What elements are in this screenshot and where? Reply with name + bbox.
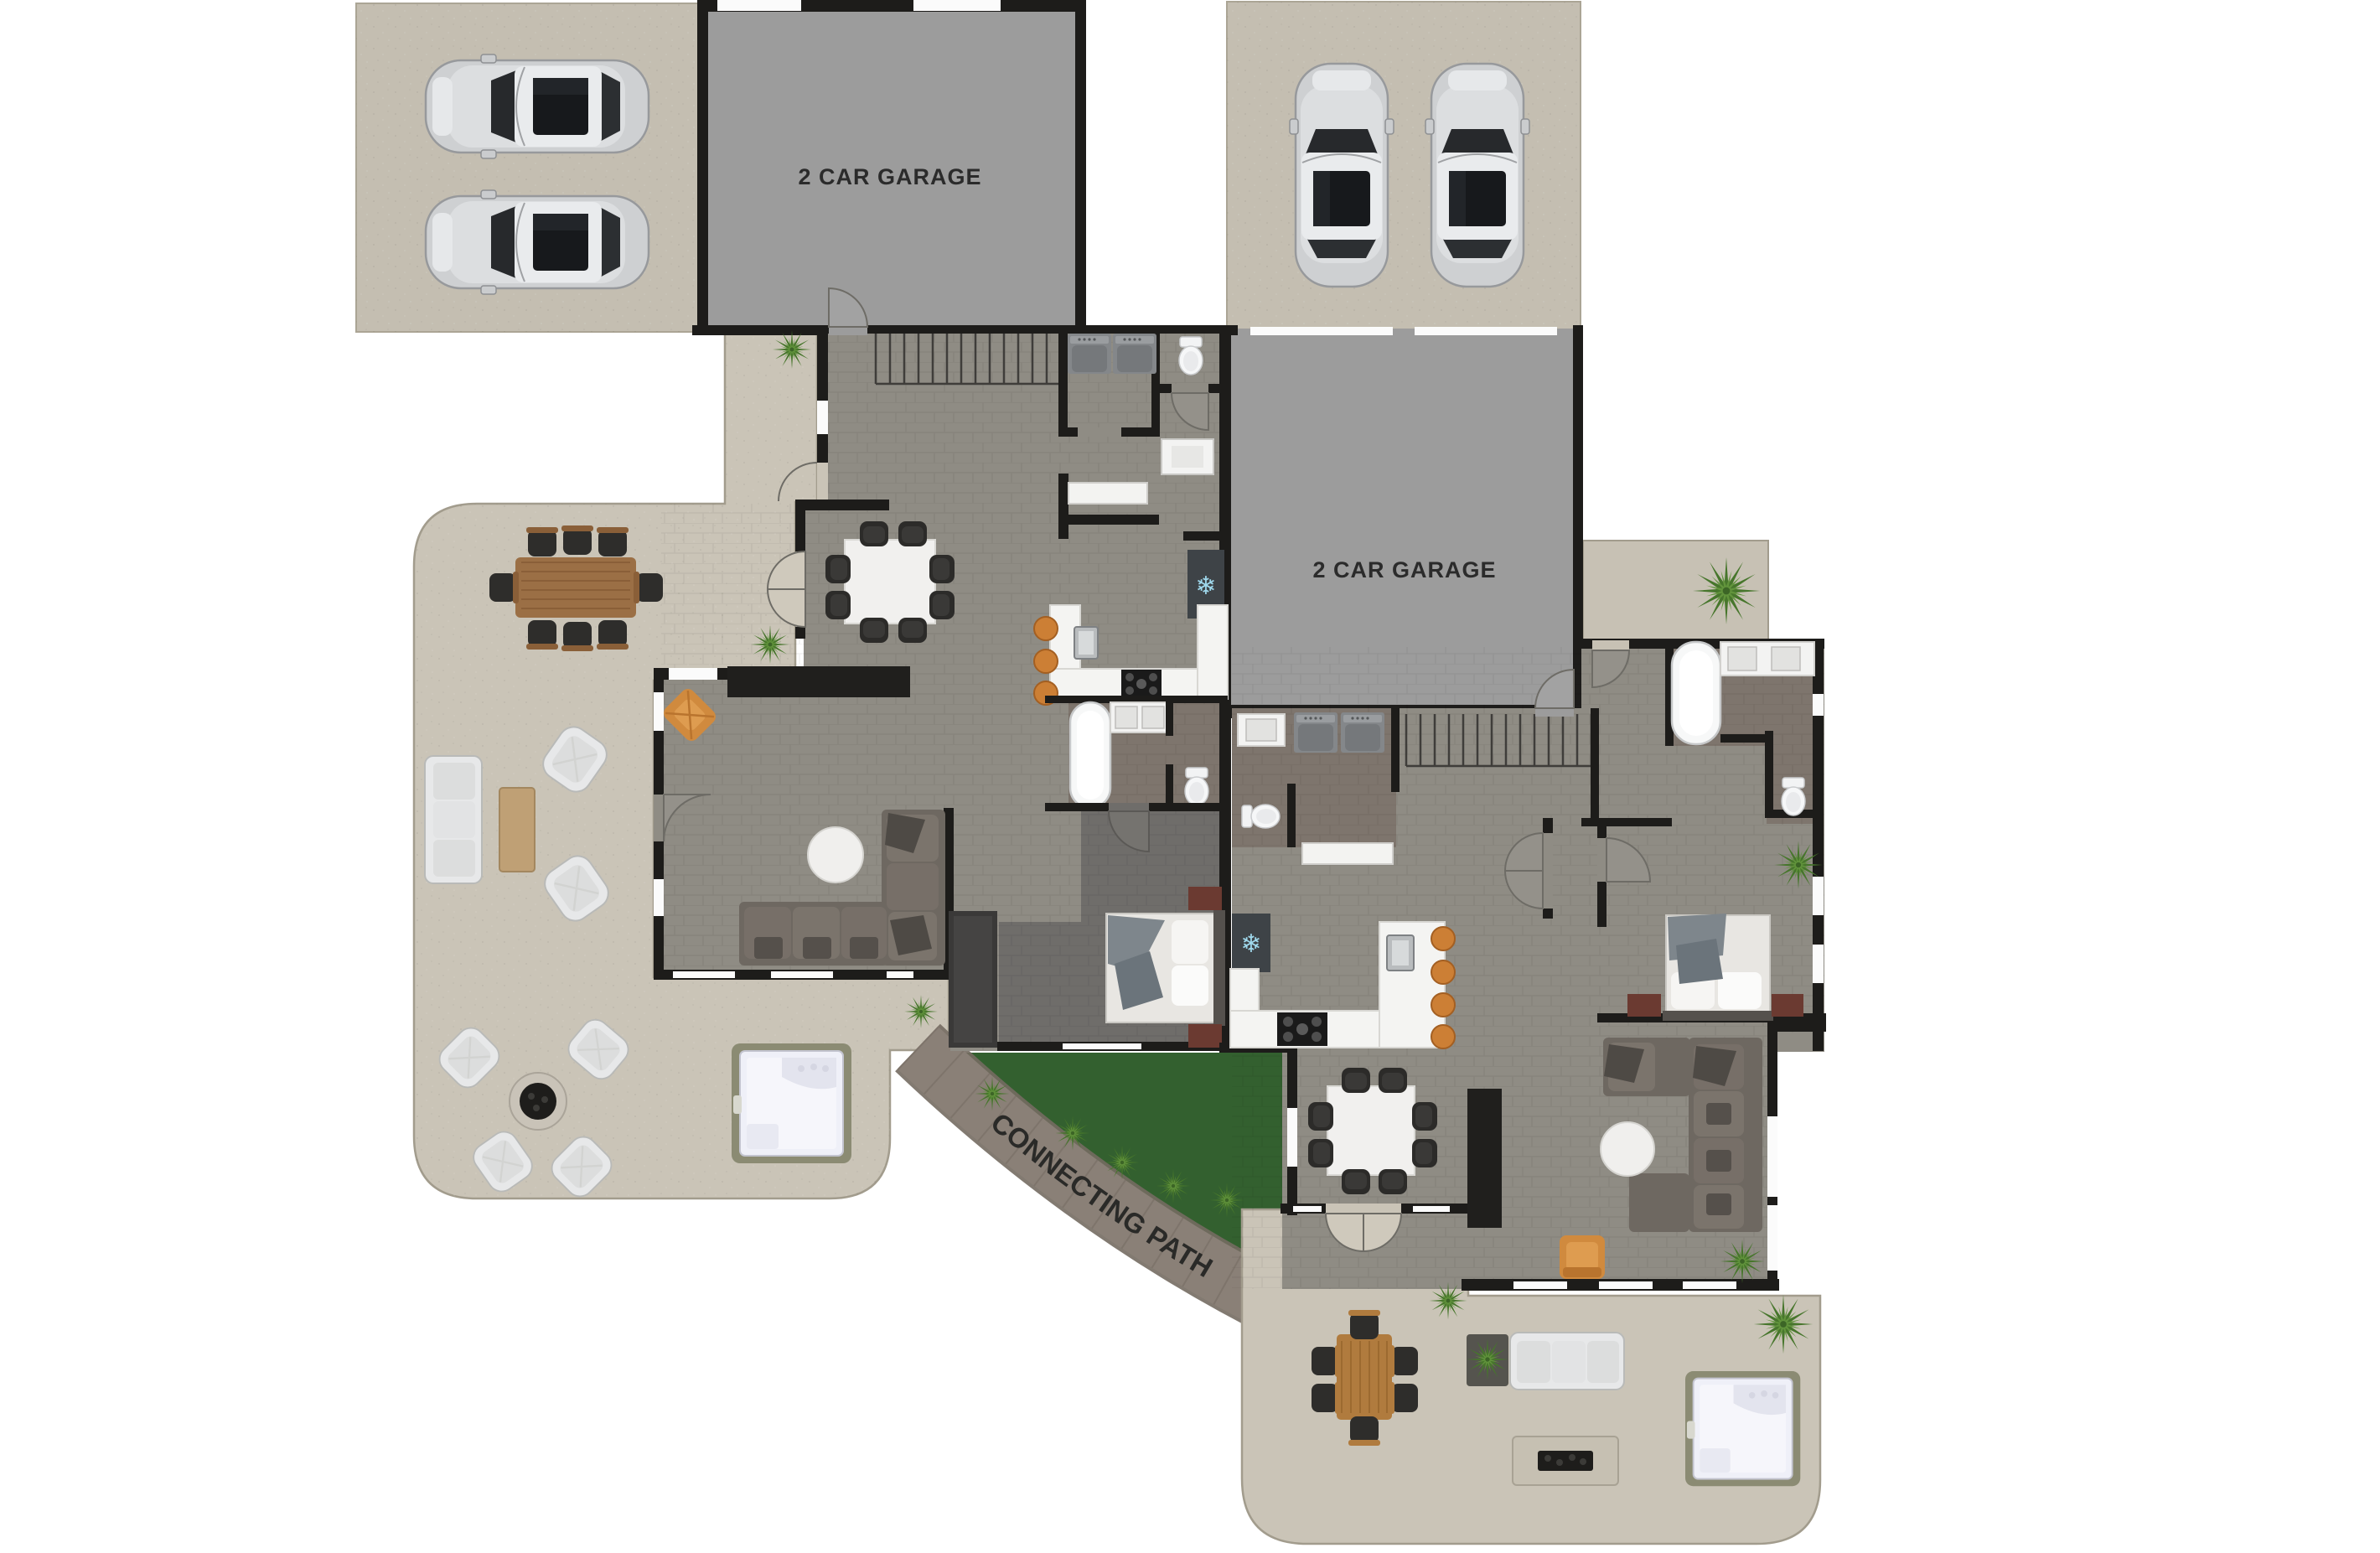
svg-text:2 CAR GARAGE: 2 CAR GARAGE — [798, 164, 981, 189]
svg-text:❄: ❄ — [1240, 930, 1261, 958]
svg-text:❄: ❄ — [1195, 572, 1216, 600]
svg-text:2 CAR GARAGE: 2 CAR GARAGE — [1312, 557, 1496, 582]
